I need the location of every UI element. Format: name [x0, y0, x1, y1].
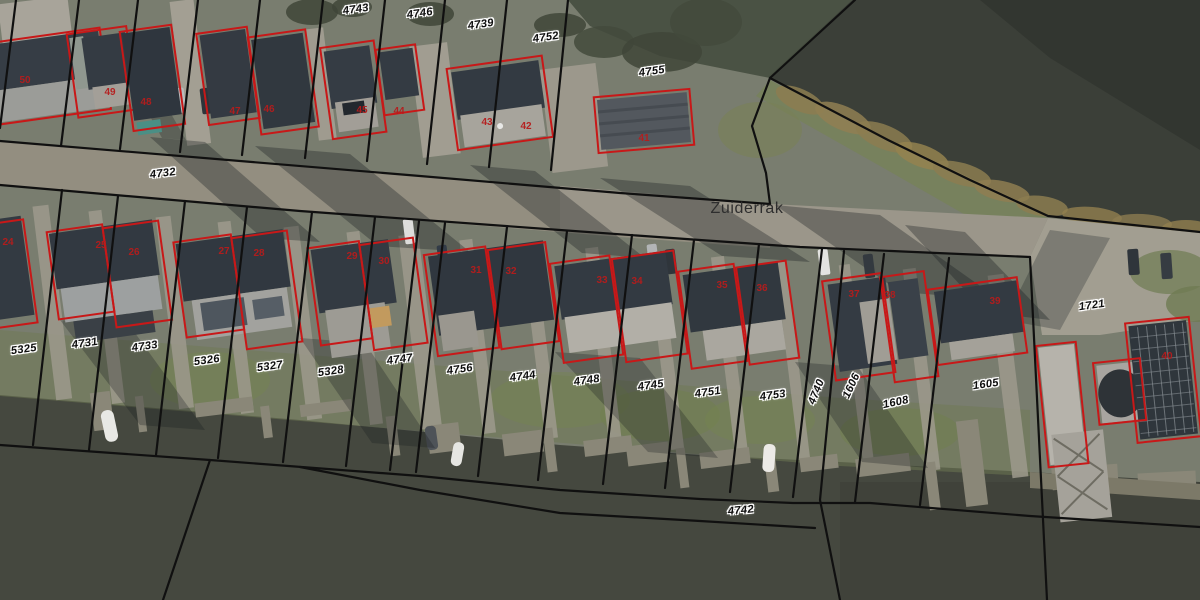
house-46	[248, 29, 319, 134]
aerial-basemap	[0, 0, 1200, 600]
aerial-map-viewport[interactable]: 4743474647394752475547325325473147335326…	[0, 0, 1200, 600]
